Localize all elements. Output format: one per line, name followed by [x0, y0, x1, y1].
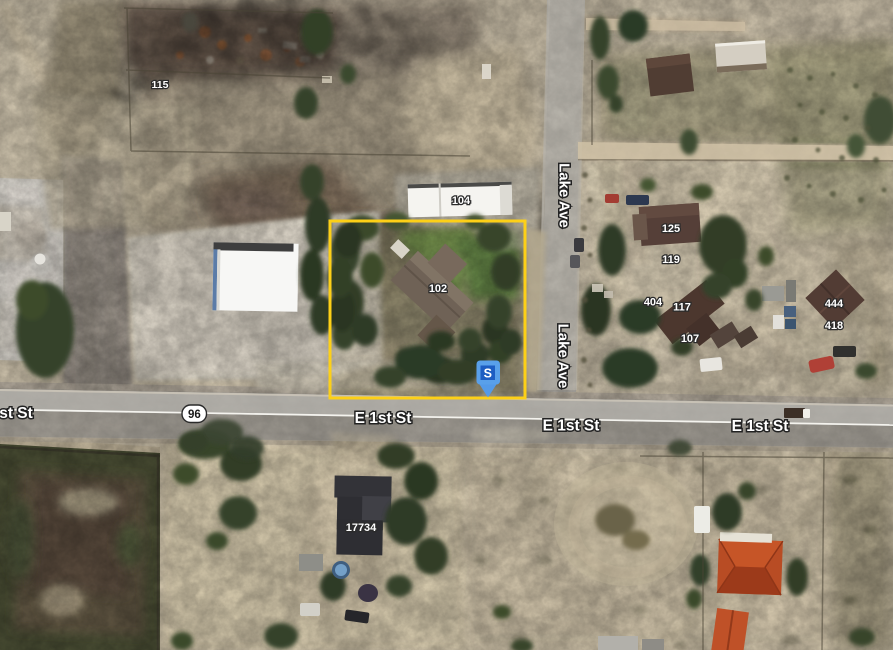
svg-text:125: 125 — [662, 223, 680, 235]
svg-text:104: 104 — [452, 195, 471, 207]
svg-text:E 1st St: E 1st St — [355, 410, 412, 427]
svg-text:115: 115 — [152, 79, 169, 91]
svg-text:404: 404 — [644, 297, 663, 309]
svg-text:119: 119 — [662, 254, 680, 266]
svg-text:E 1st St: E 1st St — [543, 418, 600, 435]
svg-text:418: 418 — [825, 320, 843, 332]
svg-text:Lake Ave: Lake Ave — [555, 324, 572, 389]
svg-text:S: S — [484, 367, 492, 381]
svg-text:17734: 17734 — [346, 522, 377, 534]
svg-text:st St: st St — [0, 405, 33, 422]
svg-text:96: 96 — [188, 409, 201, 421]
svg-text:Lake Ave: Lake Ave — [556, 163, 573, 228]
svg-text:107: 107 — [681, 333, 699, 345]
svg-text:444: 444 — [825, 298, 844, 310]
svg-text:E 1st St: E 1st St — [732, 418, 789, 435]
svg-text:102: 102 — [429, 283, 447, 295]
svg-text:117: 117 — [673, 302, 691, 314]
